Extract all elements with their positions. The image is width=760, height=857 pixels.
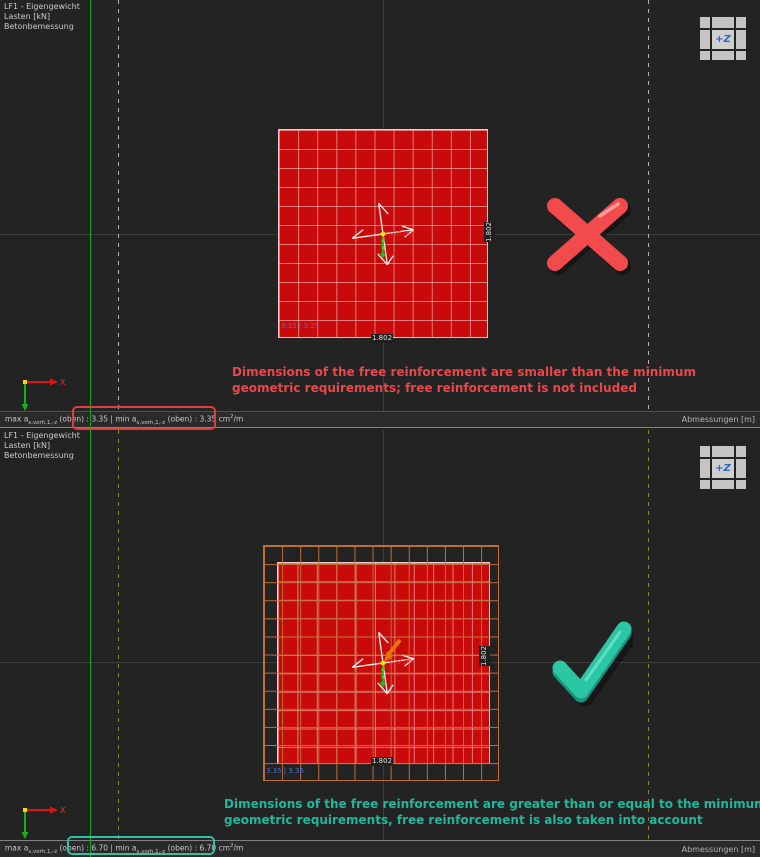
annotation-message-line1: Dimensions of the free reinforcement are… bbox=[232, 364, 696, 380]
highlight-box-teal bbox=[67, 836, 215, 855]
view-cube-cell[interactable] bbox=[736, 30, 746, 49]
view-cube-cell[interactable] bbox=[712, 17, 734, 28]
view-cube-cell[interactable] bbox=[700, 30, 710, 49]
dimension-height-bottom: 1.802 bbox=[479, 646, 490, 666]
view-cube-cell[interactable] bbox=[736, 459, 746, 478]
dimension-height-top: 1.802 bbox=[484, 222, 495, 242]
annotation-message-line2: geometric requirements, free reinforceme… bbox=[224, 812, 760, 828]
view-cube-cell[interactable] bbox=[700, 51, 710, 60]
view-cube-widget-top[interactable]: +Z bbox=[700, 17, 746, 61]
load-case-info-bottom: LF1 - Eigengewicht Lasten [kN] Betonbeme… bbox=[4, 431, 80, 461]
view-cube-cell[interactable] bbox=[712, 446, 734, 457]
view-cube-cell[interactable] bbox=[700, 17, 710, 28]
check-mark-icon bbox=[548, 616, 633, 706]
axis-x-label-bottom: X bbox=[60, 806, 66, 815]
design-module-name: Betonbemessung bbox=[4, 22, 80, 32]
surface-center-value-bottom: 100.00 bbox=[388, 658, 413, 666]
view-cube-cell[interactable] bbox=[736, 480, 746, 489]
view-cube-cell[interactable] bbox=[712, 51, 734, 60]
section-line-dashed-right-top bbox=[648, 0, 649, 411]
annotation-message-line1: Dimensions of the free reinforcement are… bbox=[224, 796, 760, 812]
coordinate-axes-icon-top: X bbox=[12, 368, 67, 413]
axis-x-label-top: X bbox=[60, 378, 66, 387]
dimension-width-bottom: 1.802 bbox=[371, 757, 393, 766]
view-cube-cell[interactable] bbox=[700, 480, 710, 489]
design-module-name: Betonbemessung bbox=[4, 451, 80, 461]
view-cube-plus-z[interactable]: +Z bbox=[712, 30, 734, 49]
annotation-message-top: Dimensions of the free reinforcement are… bbox=[232, 364, 696, 396]
units-label-bottom: Abmessungen [m] bbox=[682, 845, 755, 854]
view-cube-widget-bottom[interactable]: +Z bbox=[700, 446, 746, 490]
highlight-box-red bbox=[72, 406, 216, 430]
annotation-message-bottom: Dimensions of the free reinforcement are… bbox=[224, 796, 760, 828]
load-case-info-top: LF1 - Eigengewicht Lasten [kN] Betonbeme… bbox=[4, 2, 80, 32]
units-label-top: Abmessungen [m] bbox=[682, 415, 755, 424]
reinforcement-values-label-bottom: 3.35 | 3.35 bbox=[266, 767, 304, 775]
reinforcement-direction-symbol-bottom bbox=[333, 618, 433, 708]
view-cube-cell[interactable] bbox=[700, 446, 710, 457]
load-case-category: Lasten [kN] bbox=[4, 441, 80, 451]
view-cube-cell[interactable] bbox=[712, 480, 734, 489]
view-cube-plus-z[interactable]: +Z bbox=[712, 459, 734, 478]
section-line-dashed-left-top bbox=[118, 0, 119, 411]
view-cube-cell[interactable] bbox=[736, 17, 746, 28]
cross-mark-icon bbox=[540, 192, 635, 277]
view-cube-cell[interactable] bbox=[736, 51, 746, 60]
load-case-name: LF1 - Eigengewicht bbox=[4, 431, 80, 441]
view-cube-cell[interactable] bbox=[700, 459, 710, 478]
application-viewport: LF1 - Eigengewicht Lasten [kN] Betonbeme… bbox=[0, 0, 760, 857]
section-line-dashed-left-bottom bbox=[118, 430, 119, 840]
dimension-width-top: 1.802 bbox=[371, 334, 393, 343]
section-line-dashed-right-bottom bbox=[648, 430, 649, 840]
surface-center-value-top: 100.00 bbox=[388, 230, 413, 238]
load-case-category: Lasten [kN] bbox=[4, 12, 80, 22]
view-cube-cell[interactable] bbox=[736, 446, 746, 457]
annotation-message-line2: geometric requirements; free reinforceme… bbox=[232, 380, 696, 396]
load-case-name: LF1 - Eigengewicht bbox=[4, 2, 80, 12]
coordinate-axes-icon-bottom: X bbox=[12, 796, 67, 841]
reinforcement-values-label-top: 3.35 | 3.35 bbox=[281, 322, 319, 330]
reinforcement-direction-symbol-top bbox=[333, 189, 433, 279]
